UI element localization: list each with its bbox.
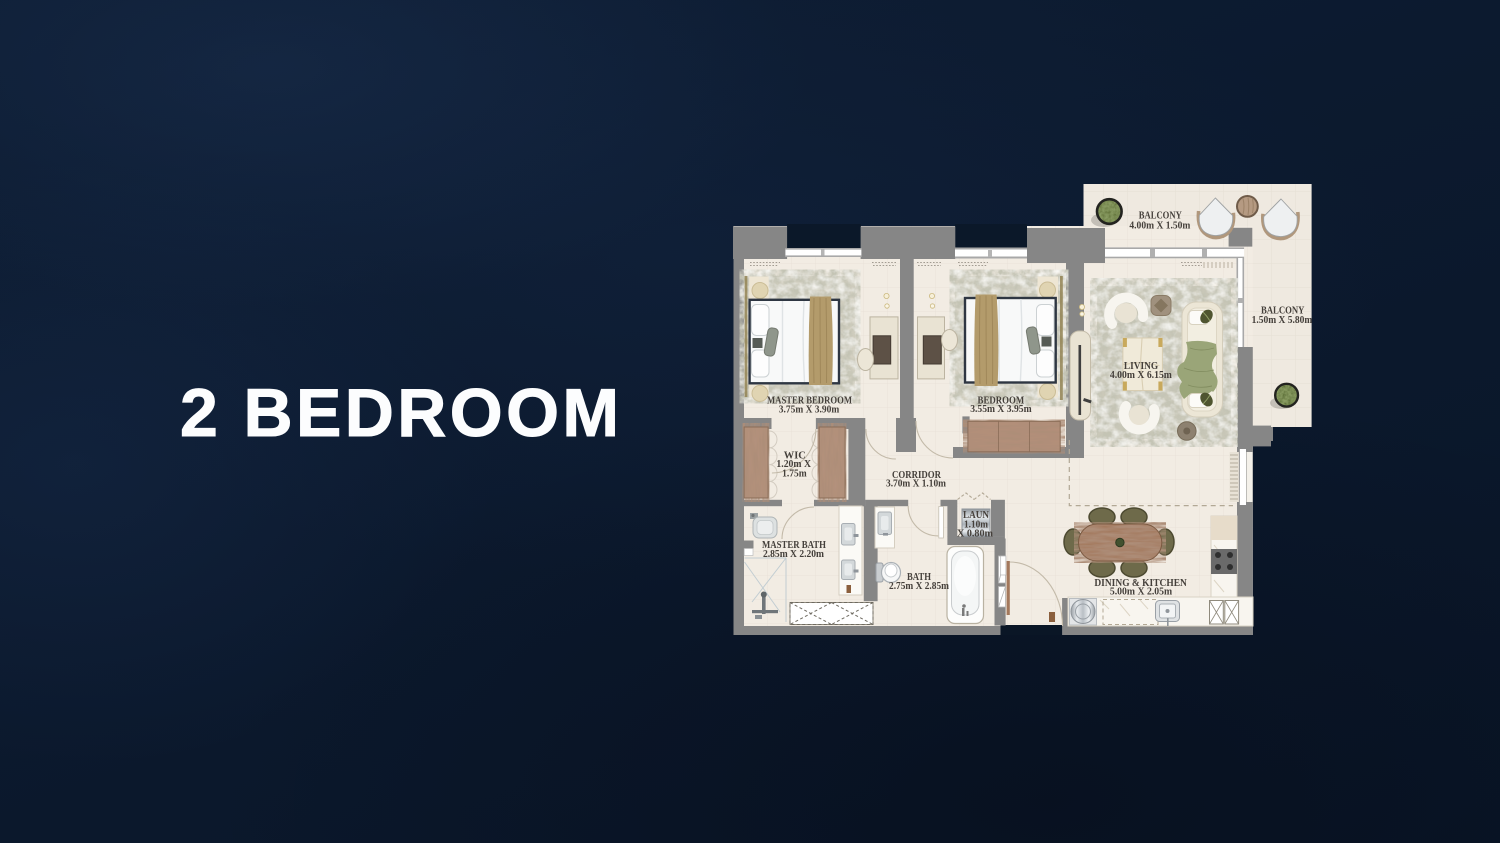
- svg-text:1.50m X 5.80m: 1.50m X 5.80m: [1252, 315, 1313, 326]
- svg-text:3.70m X 1.10m: 3.70m X 1.10m: [886, 479, 947, 490]
- svg-text:3.55m X 3.95m: 3.55m X 3.95m: [970, 404, 1032, 415]
- svg-text:2.85m X 2.20m: 2.85m X 2.20m: [763, 549, 825, 560]
- svg-text:4.00m X 6.15m: 4.00m X 6.15m: [1110, 370, 1173, 381]
- svg-text:2.75m X 2.85m: 2.75m X 2.85m: [889, 581, 950, 592]
- svg-text:5.00m X 2.05m: 5.00m X 2.05m: [1110, 587, 1173, 598]
- svg-text:X 0.80m: X 0.80m: [957, 528, 994, 539]
- svg-text:1.75m: 1.75m: [782, 469, 807, 480]
- svg-text:3.75m X 3.90m: 3.75m X 3.90m: [779, 405, 840, 416]
- svg-text:4.00m X 1.50m: 4.00m X 1.50m: [1129, 220, 1191, 231]
